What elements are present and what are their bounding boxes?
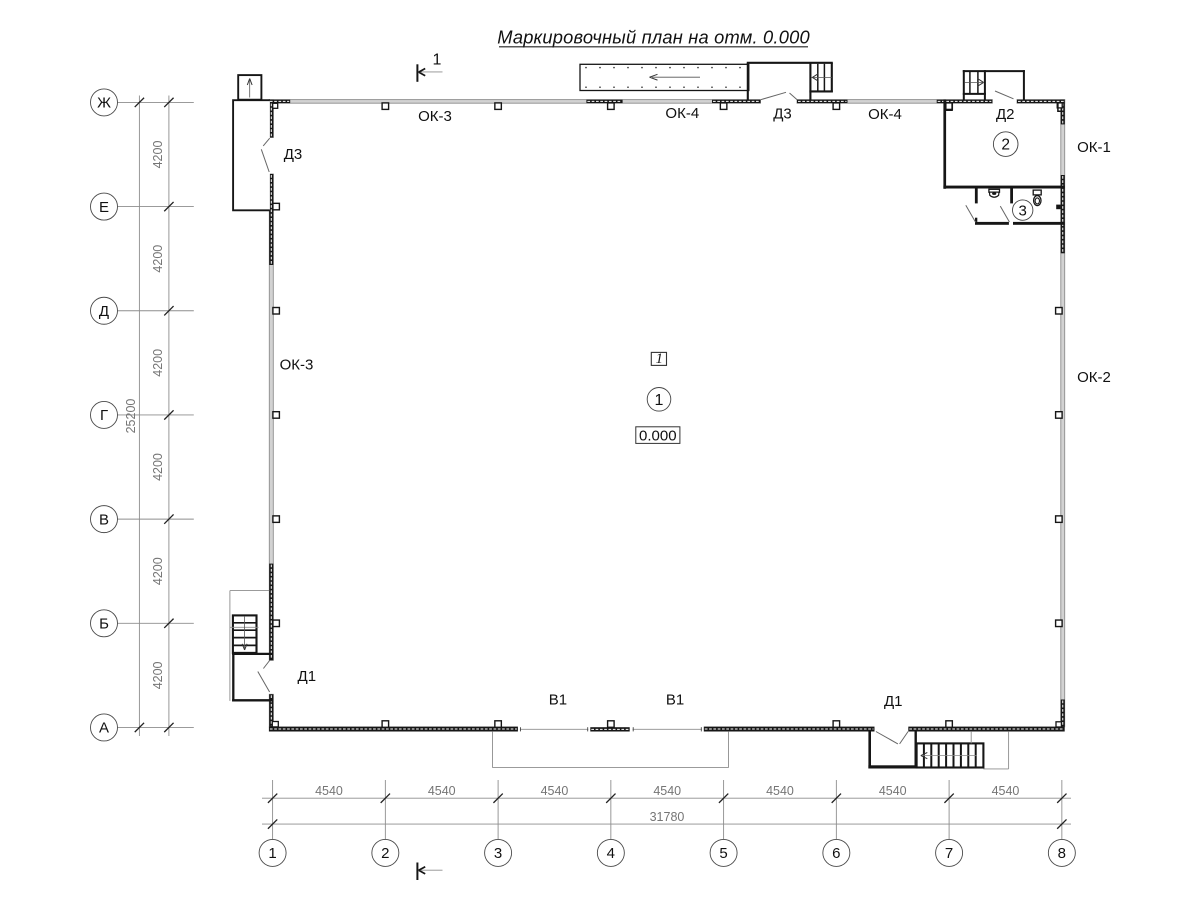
svg-text:Е: Е bbox=[99, 199, 109, 216]
svg-text:3: 3 bbox=[494, 845, 502, 862]
svg-text:1: 1 bbox=[656, 351, 663, 367]
svg-text:1: 1 bbox=[433, 52, 442, 69]
svg-text:4540: 4540 bbox=[766, 784, 794, 798]
svg-text:4200: 4200 bbox=[151, 661, 165, 689]
svg-text:ОК-4: ОК-4 bbox=[868, 106, 902, 123]
svg-text:31780: 31780 bbox=[650, 810, 685, 824]
svg-text:4540: 4540 bbox=[653, 784, 681, 798]
svg-text:4200: 4200 bbox=[151, 453, 165, 481]
svg-text:3: 3 bbox=[1019, 202, 1027, 219]
svg-text:ОК-3: ОК-3 bbox=[280, 357, 314, 374]
svg-text:6: 6 bbox=[832, 845, 840, 862]
svg-text:25200: 25200 bbox=[124, 399, 138, 434]
svg-text:7: 7 bbox=[945, 845, 953, 862]
svg-text:2: 2 bbox=[1001, 137, 1010, 154]
svg-text:Д1: Д1 bbox=[884, 693, 903, 710]
svg-text:В1: В1 bbox=[666, 692, 684, 709]
svg-text:5: 5 bbox=[719, 845, 727, 862]
svg-text:0.000: 0.000 bbox=[639, 428, 677, 445]
svg-text:4540: 4540 bbox=[428, 784, 456, 798]
svg-text:Д3: Д3 bbox=[284, 146, 303, 163]
svg-text:ОК-3: ОК-3 bbox=[418, 108, 452, 125]
svg-text:4200: 4200 bbox=[151, 141, 165, 169]
svg-text:4540: 4540 bbox=[541, 784, 569, 798]
svg-text:4200: 4200 bbox=[151, 349, 165, 377]
svg-text:Д: Д bbox=[99, 303, 109, 320]
svg-text:2: 2 bbox=[381, 845, 389, 862]
svg-text:Г: Г bbox=[100, 407, 108, 424]
svg-text:4200: 4200 bbox=[151, 245, 165, 273]
svg-text:4540: 4540 bbox=[992, 784, 1020, 798]
svg-text:ОК-4: ОК-4 bbox=[665, 105, 699, 122]
svg-text:Д1: Д1 bbox=[298, 668, 317, 685]
svg-text:4: 4 bbox=[607, 845, 615, 862]
svg-text:Б: Б bbox=[99, 616, 109, 633]
svg-text:1: 1 bbox=[268, 845, 276, 862]
svg-text:А: А bbox=[99, 720, 109, 737]
svg-text:Ж: Ж bbox=[97, 95, 111, 112]
svg-text:8: 8 bbox=[1058, 845, 1066, 862]
svg-text:ОК-2: ОК-2 bbox=[1077, 369, 1111, 386]
svg-text:В1: В1 bbox=[549, 692, 567, 709]
svg-text:Д2: Д2 bbox=[996, 106, 1015, 123]
svg-text:В: В bbox=[99, 511, 109, 528]
svg-text:Маркировочный план на отм. 0.0: Маркировочный план на отм. 0.000 bbox=[497, 27, 810, 48]
svg-text:4200: 4200 bbox=[151, 557, 165, 585]
svg-text:Д3: Д3 bbox=[773, 106, 792, 123]
svg-text:4540: 4540 bbox=[315, 784, 343, 798]
svg-text:1: 1 bbox=[655, 392, 664, 409]
svg-text:ОК-1: ОК-1 bbox=[1077, 139, 1111, 156]
svg-text:4540: 4540 bbox=[879, 784, 907, 798]
